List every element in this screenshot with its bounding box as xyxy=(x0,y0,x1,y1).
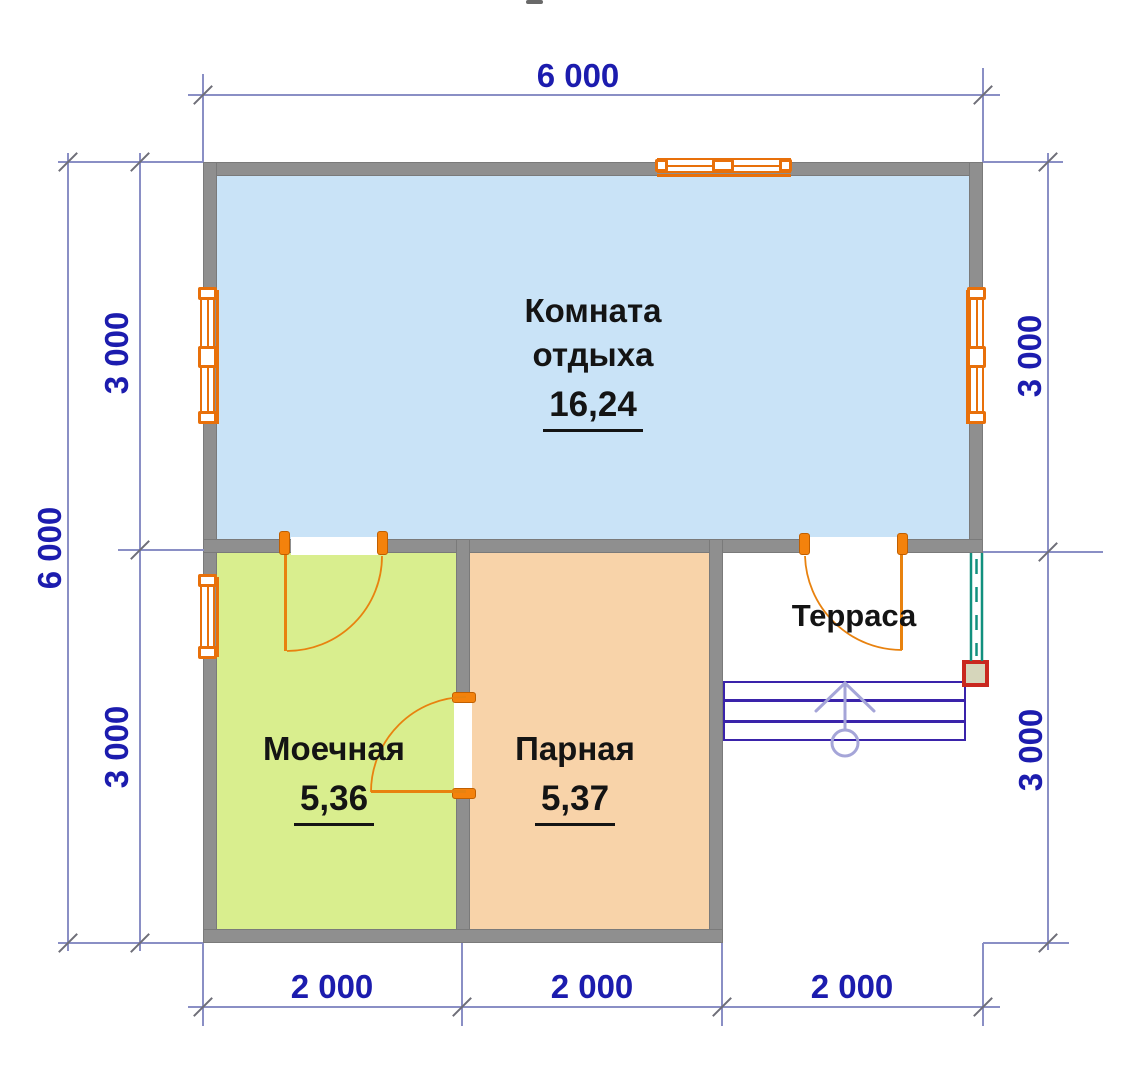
dim-label-bottom-1: 2 000 xyxy=(232,968,432,1006)
stair-step-line xyxy=(725,699,964,702)
door-jamb xyxy=(799,533,810,555)
door-opening-rest-wash xyxy=(291,537,378,555)
ext-line xyxy=(461,943,463,1026)
door-leaf-rest-wash xyxy=(284,555,287,651)
room-label-wash: Моечная 5,36 xyxy=(214,727,454,826)
dim-label-left-upper: 3 000 xyxy=(98,312,136,395)
window-east-rest-end-block xyxy=(967,411,986,424)
wall-steam-east xyxy=(709,539,723,943)
room-area-rest: 16,24 xyxy=(543,383,643,432)
door-opening-rest-terrace xyxy=(809,537,898,555)
terrace-column xyxy=(962,660,989,687)
room-label-rest: Комната отдыха 16,24 xyxy=(443,289,743,432)
window-north-end-block xyxy=(779,159,792,172)
window-west-wash-end-block xyxy=(198,646,217,659)
window-north-sill xyxy=(657,174,791,177)
door-jamb xyxy=(377,531,388,555)
window-north-end-block xyxy=(655,159,668,172)
dim-label-right-lower: 3 000 xyxy=(1012,709,1050,792)
dim-label-left-lower: 3 000 xyxy=(98,706,136,789)
room-name-line: Комната xyxy=(443,289,743,333)
window-east-rest-end-block xyxy=(967,287,986,300)
window-west-rest-center-block xyxy=(198,346,217,368)
window-west-wash xyxy=(200,577,215,657)
room-label-terrace: Терраса xyxy=(774,599,934,632)
window-west-wash-end-block xyxy=(198,574,217,587)
floor-plan: 6 000 6 000 3 000 3 000 3 000 3 000 2 00… xyxy=(0,0,1143,1081)
door-jamb xyxy=(452,692,476,703)
cropped-artifact xyxy=(526,0,543,4)
room-name: Моечная xyxy=(214,727,454,771)
door-jamb xyxy=(897,533,908,555)
ext-line xyxy=(118,549,204,551)
window-mullion xyxy=(207,579,209,655)
ext-line xyxy=(982,943,984,1026)
dim-label-left-total: 6 000 xyxy=(31,507,69,590)
window-east-rest-sill xyxy=(966,290,969,424)
ext-line xyxy=(58,942,203,944)
window-west-wash-sill xyxy=(216,577,219,657)
ext-line xyxy=(982,68,984,162)
ext-line xyxy=(983,942,1069,944)
window-east-rest-center-block xyxy=(967,346,986,368)
stairs xyxy=(723,681,966,741)
window-north-center-block xyxy=(712,159,734,172)
ext-line xyxy=(983,551,1103,553)
dim-label-bottom-3: 2 000 xyxy=(752,968,952,1006)
dim-label-top: 6 000 xyxy=(428,57,728,95)
dim-label-bottom-2: 2 000 xyxy=(492,968,692,1006)
ext-line xyxy=(983,161,1063,163)
stair-step-line xyxy=(725,720,964,723)
ext-line xyxy=(58,161,203,163)
ext-line xyxy=(202,943,204,1026)
dim-line-bottom xyxy=(188,1006,1000,1008)
room-label-steam: Парная 5,37 xyxy=(455,727,695,826)
window-west-rest-end-block xyxy=(198,411,217,424)
wall-north xyxy=(203,162,983,176)
room-name-line: отдыха xyxy=(443,333,743,377)
ext-line xyxy=(202,74,204,162)
ext-line xyxy=(721,943,723,1026)
door-jamb xyxy=(279,531,290,555)
room-name: Парная xyxy=(455,727,695,771)
dim-label-right-upper: 3 000 xyxy=(1011,315,1049,398)
room-area-steam: 5,37 xyxy=(535,777,615,826)
window-west-rest-sill xyxy=(216,290,219,424)
wall-south xyxy=(203,929,723,943)
window-west-rest-end-block xyxy=(198,287,217,300)
room-area-wash: 5,36 xyxy=(294,777,374,826)
